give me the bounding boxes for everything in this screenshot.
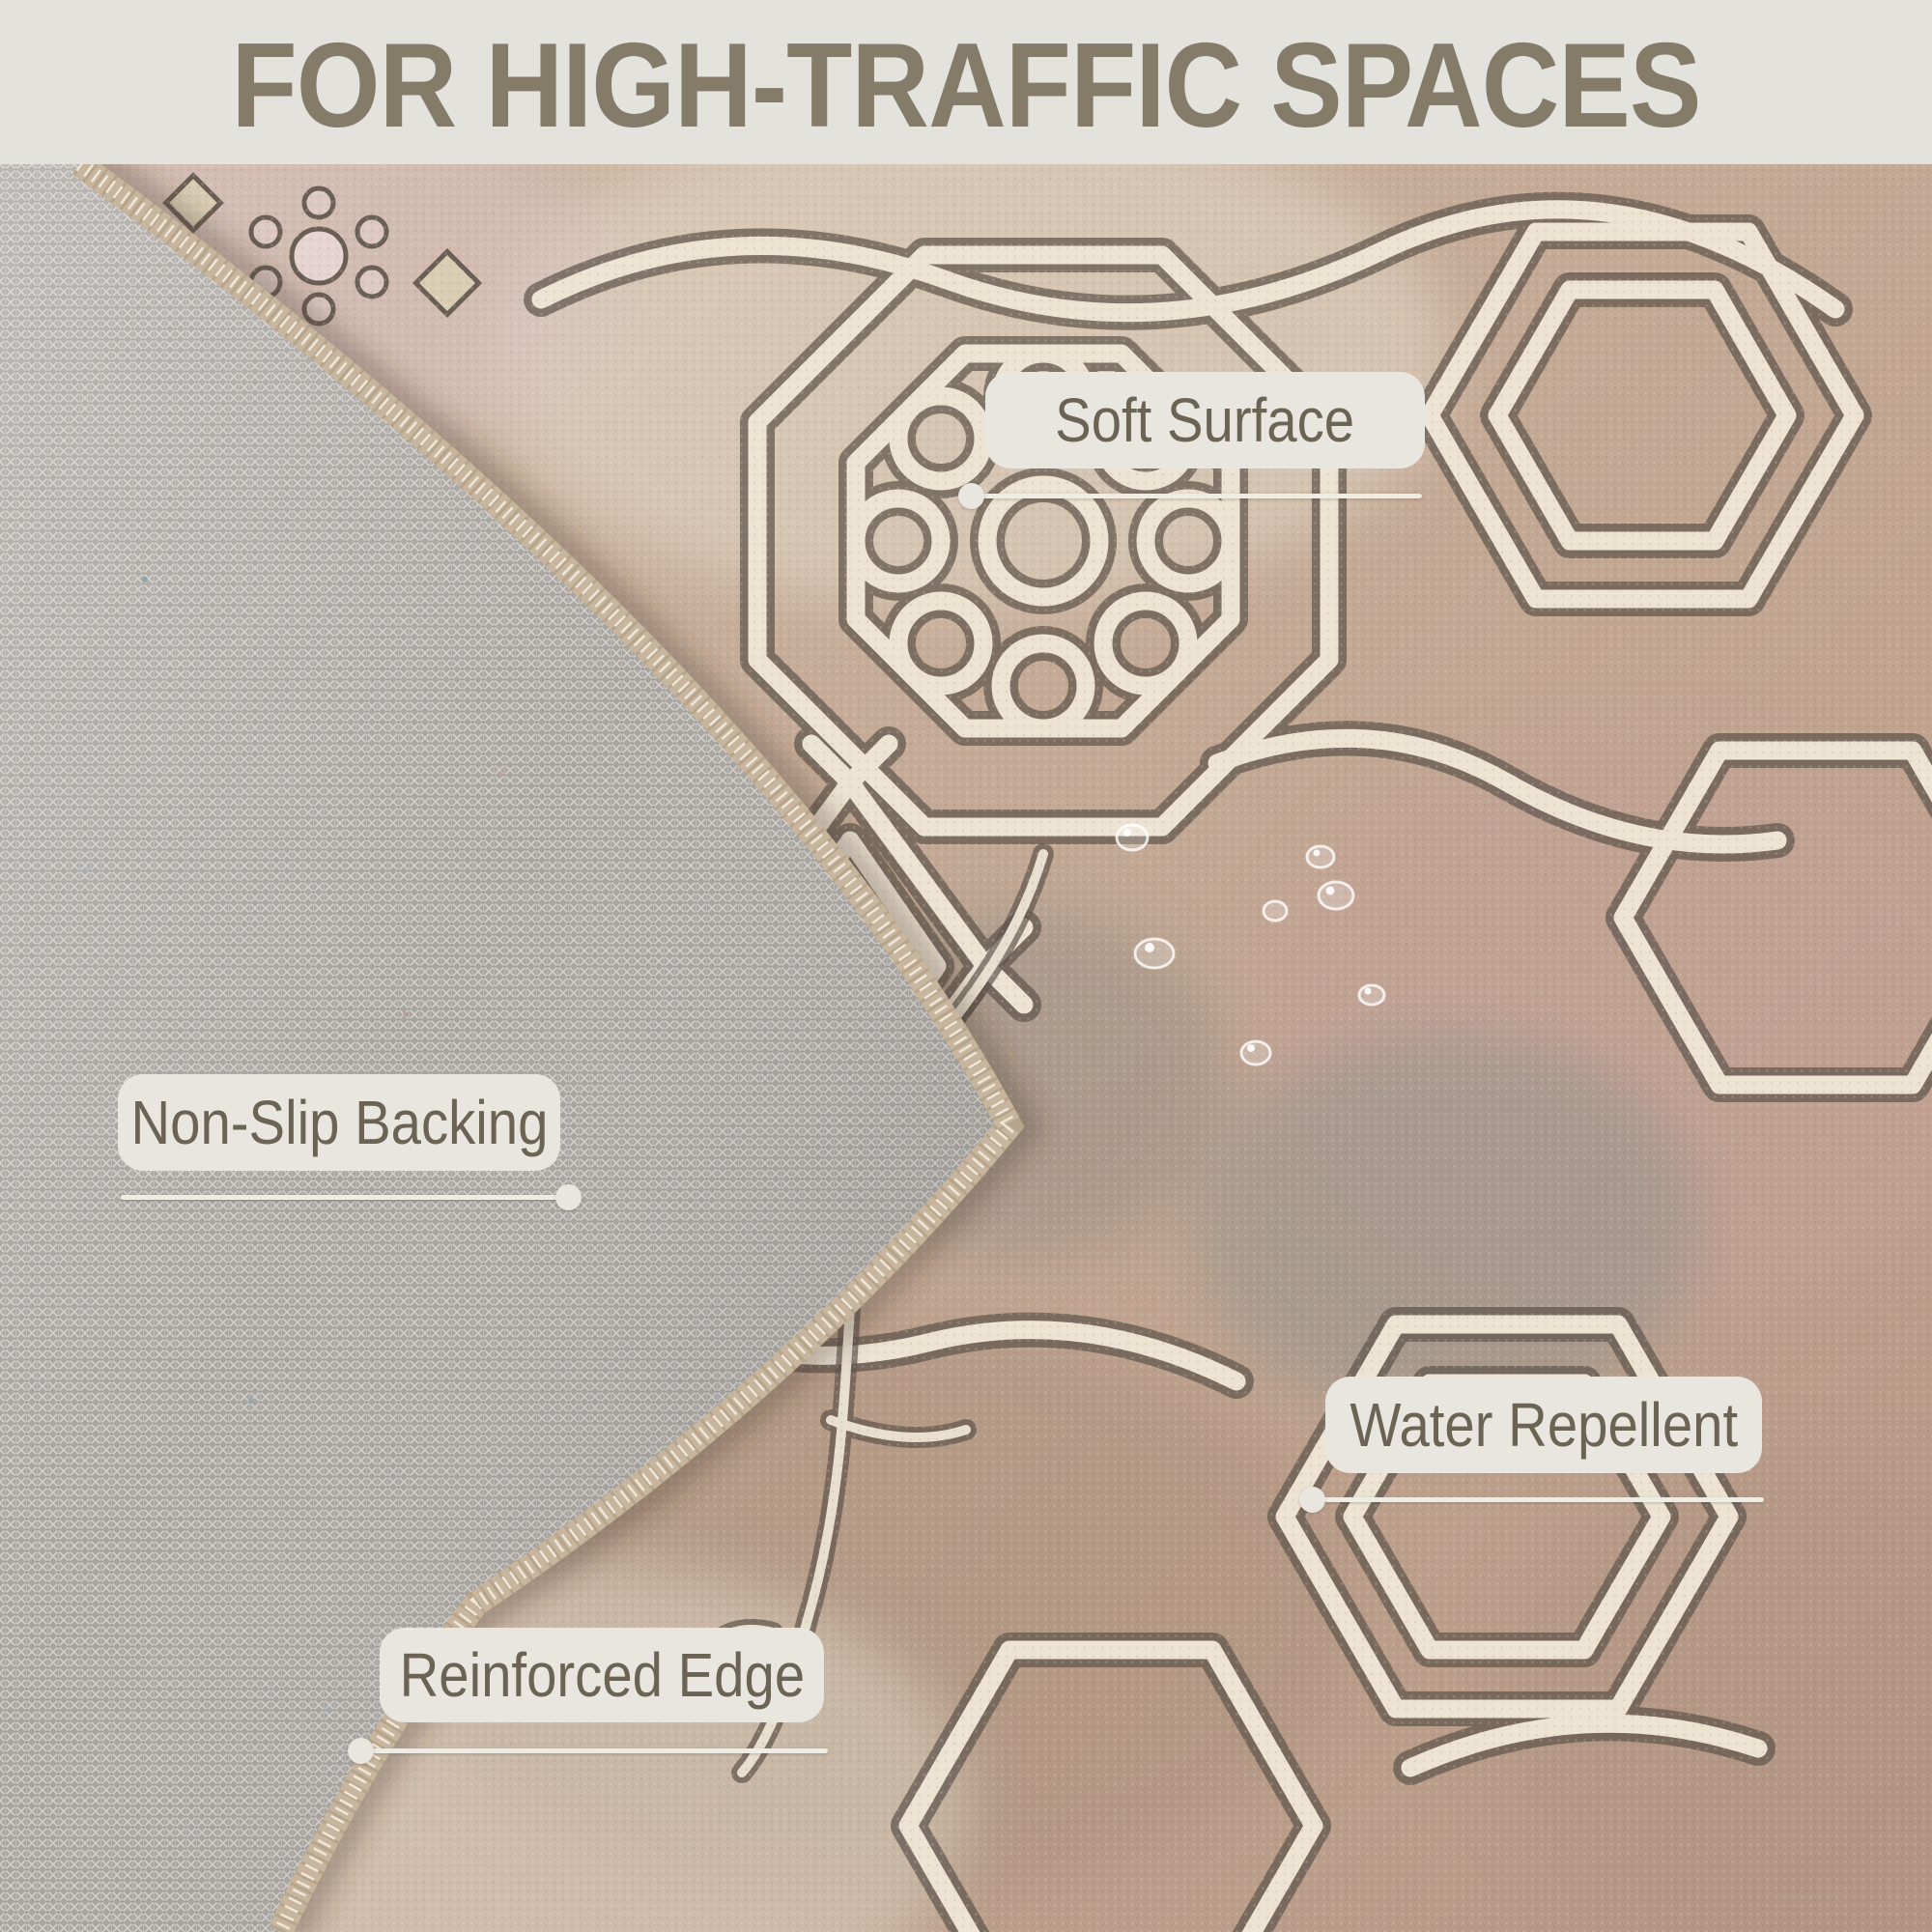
callout-label: Non-Slip Backing: [130, 1087, 548, 1158]
callout-dot-water-repellent: [1299, 1487, 1325, 1513]
callout-reinforced-edge: Reinforced Edge: [380, 1628, 824, 1722]
product-infographic: FOR HIGH-TRAFFIC SPACES: [0, 0, 1932, 1932]
callout-line-water-repellent: [1312, 1497, 1764, 1502]
product-photo: [0, 164, 1932, 1932]
callout-line-non-slip-backing: [121, 1195, 568, 1200]
callout-label: Reinforced Edge: [399, 1639, 805, 1711]
callout-non-slip-backing: Non-Slip Backing: [118, 1074, 560, 1171]
callout-water-repellent: Water Repellent: [1325, 1377, 1762, 1473]
callout-label: Soft Surface: [1056, 384, 1355, 456]
callout-label: Water Repellent: [1350, 1389, 1738, 1461]
callout-dot-reinforced-edge: [348, 1738, 374, 1764]
page-title: FOR HIGH-TRAFFIC SPACES: [232, 33, 1701, 139]
callout-line-reinforced-edge: [360, 1748, 828, 1753]
callout-soft-surface: Soft Surface: [985, 372, 1425, 469]
callout-dot-soft-surface: [958, 483, 984, 509]
callout-dot-non-slip-backing: [555, 1184, 582, 1210]
title-banner: FOR HIGH-TRAFFIC SPACES: [0, 0, 1932, 164]
callout-line-soft-surface: [971, 494, 1422, 498]
